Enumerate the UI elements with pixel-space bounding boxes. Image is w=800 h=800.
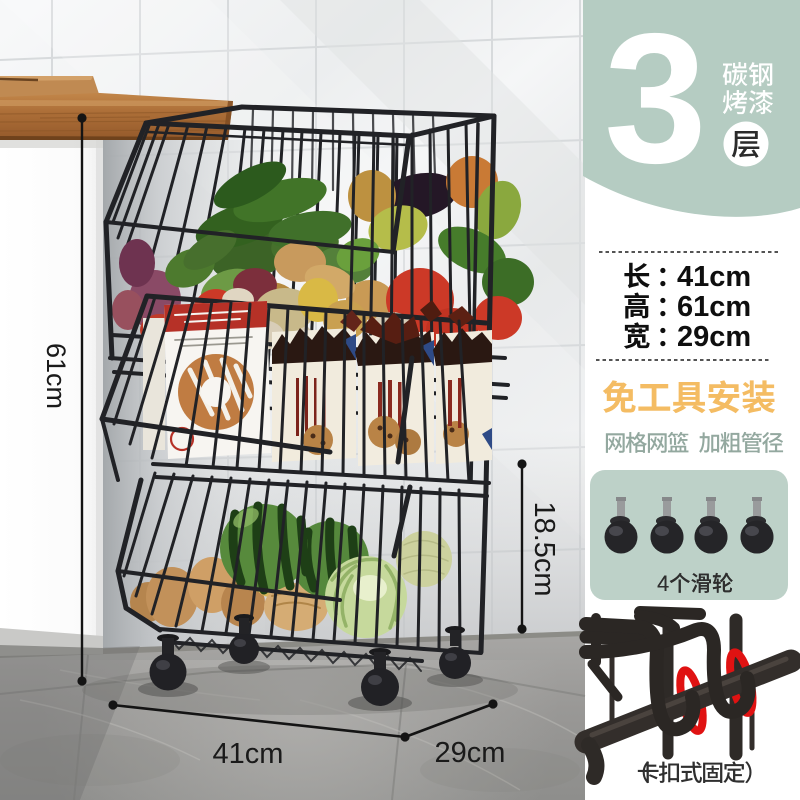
svg-text:41cm: 41cm <box>677 261 751 293</box>
svg-text:41cm: 41cm <box>213 738 284 770</box>
svg-text:61cm: 61cm <box>677 291 751 323</box>
svg-text:61cm: 61cm <box>41 343 71 409</box>
svg-text:29cm: 29cm <box>677 321 751 353</box>
svg-text:29cm: 29cm <box>435 737 506 769</box>
svg-text:18.5cm: 18.5cm <box>528 501 560 596</box>
svg-text:3: 3 <box>604 0 707 202</box>
svg-text:4: 4 <box>657 571 669 596</box>
